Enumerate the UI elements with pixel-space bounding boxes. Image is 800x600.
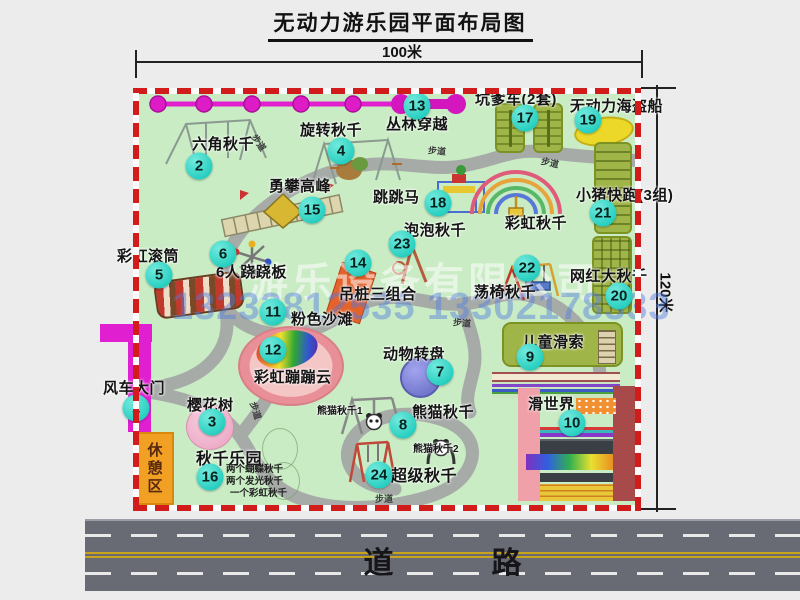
marker-piggy-run: 21 bbox=[590, 200, 617, 227]
marker-pirate-ship: 19 bbox=[575, 107, 602, 134]
path-label: 步道 bbox=[452, 315, 471, 330]
marker-hex-swing: 2 bbox=[186, 153, 213, 180]
marker-rainbow-roller: 5 bbox=[146, 262, 173, 289]
pink-beach-label: 粉色沙滩 bbox=[291, 308, 353, 329]
panda-swing-1-label: 熊猫秋千1 bbox=[317, 402, 363, 417]
park-map-page: { "title": "无动力游乐园平面布局图", "dimensions": … bbox=[0, 0, 800, 600]
panda-swing-label: 熊猫秋千 bbox=[412, 401, 474, 422]
swing-chair-label: 荡椅秋千 bbox=[474, 281, 536, 302]
hanging-piles-label: 吊桩三组合 bbox=[339, 283, 417, 304]
marker-panda-swing: 8 bbox=[390, 412, 417, 439]
marker-pink-beach: 11 bbox=[260, 299, 287, 326]
swing-park-item-1: 两个蝴蝶秋千 bbox=[226, 464, 283, 476]
path-label: 步道 bbox=[427, 143, 446, 158]
marker-animal-turntable: 7 bbox=[427, 359, 454, 386]
marker-big-swing: 20 bbox=[606, 283, 633, 310]
rainbow-swing-label: 彩虹秋千 bbox=[505, 212, 567, 233]
hex-swing-label: 六角秋千 bbox=[192, 133, 254, 154]
panda-swing-2-label: 熊猫秋千2 bbox=[413, 440, 459, 455]
marker-swing-park: 16 bbox=[197, 464, 224, 491]
path-label: 步道 bbox=[375, 492, 393, 505]
road: 道 路 bbox=[85, 519, 800, 591]
peak-climb-label: 勇攀高峰 bbox=[269, 175, 331, 196]
marker-rotating-swing: 4 bbox=[328, 138, 355, 165]
map-border-top bbox=[133, 88, 641, 94]
rainbow-swing-icon bbox=[472, 172, 560, 216]
marker-hanging-piles: 14 bbox=[345, 250, 372, 277]
rainbow-cloud-label: 彩虹蹦蹦云 bbox=[254, 366, 332, 387]
marker-jungle-crossing: 13 bbox=[404, 93, 431, 120]
marker-swing-chair: 22 bbox=[514, 255, 541, 282]
watermark-phone: 13233812535 13302178333 bbox=[172, 286, 671, 329]
marker-seesaw: 6 bbox=[210, 241, 237, 268]
map-border-right bbox=[635, 88, 641, 511]
map-border-left bbox=[133, 88, 139, 511]
marker-bubble-swing: 23 bbox=[389, 231, 416, 258]
swing-park-item-2: 两个发光秋千 bbox=[226, 476, 283, 488]
rotating-swing-label: 旋转秋千 bbox=[300, 119, 362, 140]
super-swing-label: 超级秋千 bbox=[391, 462, 457, 486]
road-label: 道 路 bbox=[85, 538, 800, 582]
road-lane-dash-top bbox=[85, 534, 800, 537]
rainbow-roller-label: 彩虹滚筒 bbox=[117, 245, 179, 266]
swing-park-item-3: 一个彩虹秋千 bbox=[230, 488, 287, 500]
marker-kids-zipline: 9 bbox=[517, 344, 544, 371]
marker-peak-climb: 15 bbox=[299, 197, 326, 224]
jumping-horse-label: 跳跳马 bbox=[373, 186, 420, 207]
marker-kengdie-car: 17 bbox=[512, 105, 539, 132]
map-border-bottom bbox=[133, 505, 641, 511]
marker-rainbow-cloud: 12 bbox=[260, 337, 287, 364]
marker-slide-world: 10 bbox=[559, 410, 586, 437]
marker-cherry-tree: 3 bbox=[199, 409, 226, 436]
marker-super-swing: 24 bbox=[366, 462, 393, 489]
piggy-run-label: 小猪快跑(3组) bbox=[576, 184, 673, 205]
marker-jumping-horse: 18 bbox=[425, 190, 452, 217]
